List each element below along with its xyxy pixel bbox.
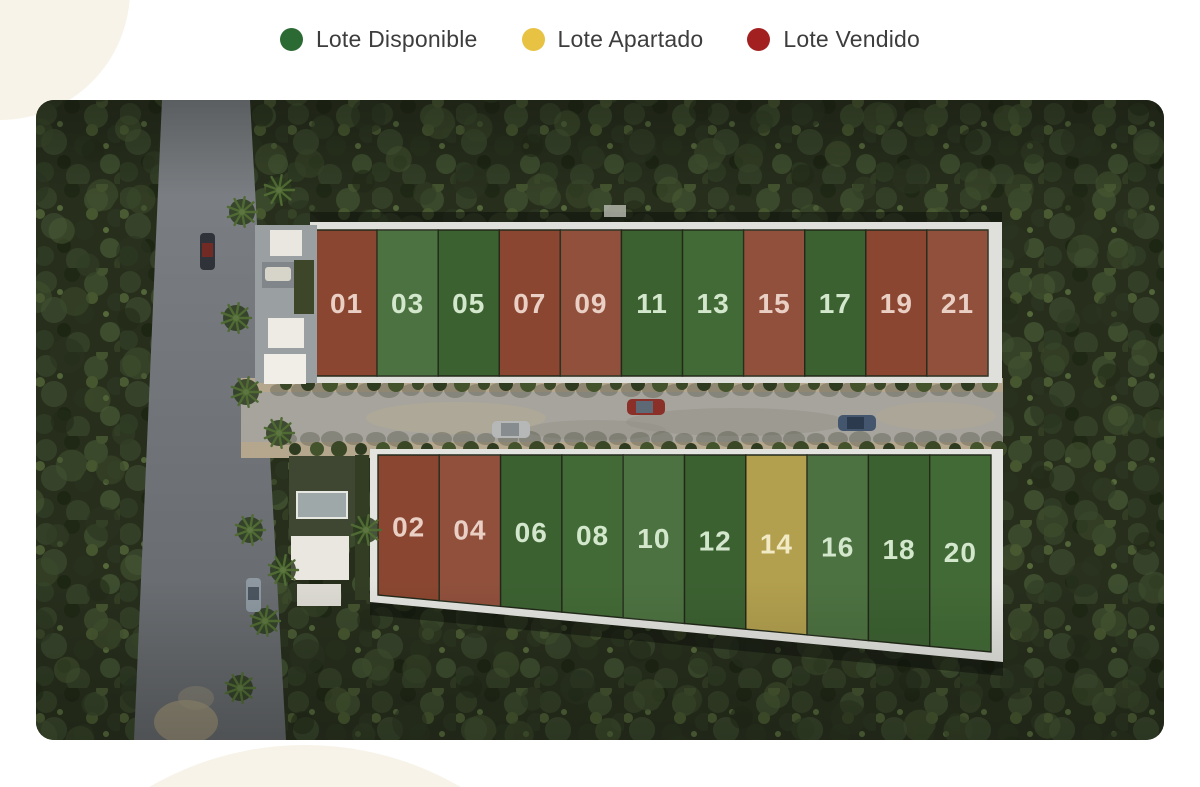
legend-item-apartado: Lote Apartado [522, 26, 704, 53]
legend-label-vendido: Lote Vendido [783, 26, 920, 53]
legend-dot-vendido-icon [747, 28, 770, 51]
legend-label-apartado: Lote Apartado [558, 26, 704, 53]
legend-dot-apartado-icon [522, 28, 545, 51]
page: Lote Disponible Lote Apartado Lote Vendi… [0, 0, 1200, 787]
lighting-overlay [36, 100, 1164, 740]
site-plan-aerial-image: 0103050709111315171921 02040608101214161… [36, 100, 1164, 740]
legend-item-disponible: Lote Disponible [280, 26, 478, 53]
legend-dot-disponible-icon [280, 28, 303, 51]
decorative-circle-bottom-left [0, 745, 615, 787]
legend-label-disponible: Lote Disponible [316, 26, 478, 53]
lot-status-legend: Lote Disponible Lote Apartado Lote Vendi… [0, 26, 1200, 53]
legend-item-vendido: Lote Vendido [747, 26, 920, 53]
